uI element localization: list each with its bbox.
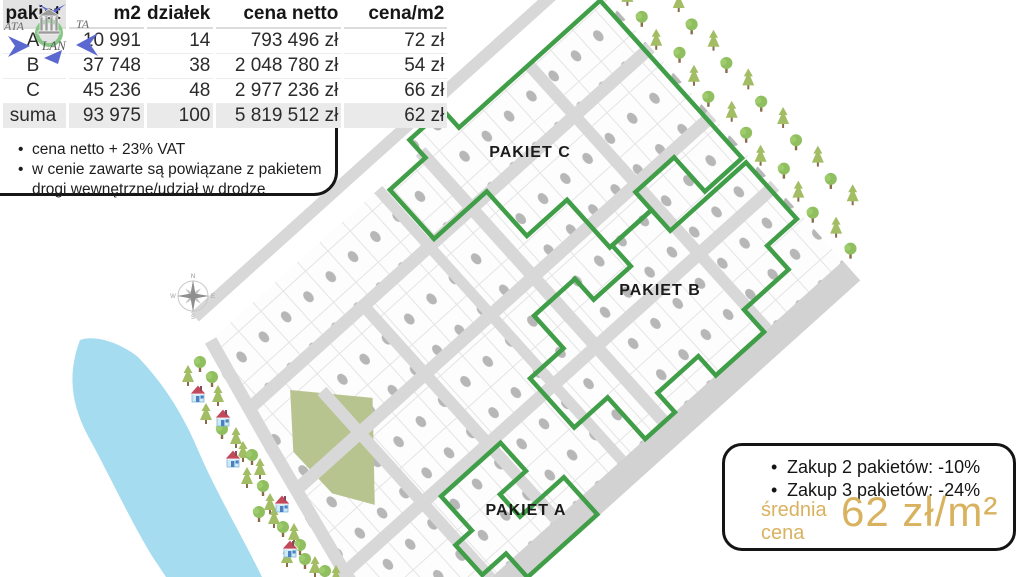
cell: 14	[147, 29, 213, 54]
tree-conifer-icon	[212, 385, 224, 406]
note-item: w cenie zawarte są powiązane z pakietem …	[32, 160, 328, 200]
pricing-notes: cena netto + 23% VAT w cenie zawarte są …	[10, 140, 328, 199]
svg-text:E: E	[211, 294, 215, 300]
cell: 93 975	[69, 104, 144, 128]
tree-conifer-icon	[230, 427, 242, 448]
cell: 2 048 780 zł	[216, 54, 341, 79]
cell: 62 zł	[344, 104, 447, 128]
tree-deciduous-icon	[673, 47, 685, 63]
average-price-label: średnia cena	[761, 499, 827, 545]
tree-conifer-icon	[673, 0, 685, 12]
tree-deciduous-icon	[790, 134, 802, 150]
tree-conifer-icon	[182, 365, 194, 386]
tree-conifer-icon	[688, 65, 700, 86]
cell: 2 977 236 zł	[216, 79, 341, 104]
house-icon	[190, 385, 206, 402]
tree-deciduous-icon	[825, 173, 837, 189]
average-price-value: 62 zł/m²	[841, 488, 998, 536]
tree-deciduous-icon	[636, 11, 648, 27]
tree-conifer-icon	[812, 146, 824, 167]
house-icon	[215, 409, 231, 426]
package-label-c: PAKIET C	[489, 144, 570, 162]
tree-conifer-icon	[755, 145, 767, 166]
tree-deciduous-icon	[778, 163, 790, 179]
tree-deciduous-icon	[253, 506, 265, 522]
logo-text-left: ATA	[3, 19, 25, 33]
tree-deciduous-icon	[206, 371, 218, 387]
cell: suma	[3, 104, 66, 128]
cell: 5 819 512 zł	[216, 104, 341, 128]
tree-deciduous-icon	[755, 96, 767, 112]
tree-conifer-icon	[742, 68, 754, 89]
logo-text-bottom: LAN	[41, 38, 67, 53]
tree-conifer-icon	[792, 181, 804, 202]
column-header-2: działek	[147, 0, 213, 29]
tree-deciduous-icon	[194, 356, 206, 372]
cell: 72 zł	[344, 29, 447, 54]
discount-offer-box: Zakup 2 pakietów: -10% Zakup 3 pakietów:…	[722, 443, 1016, 551]
package-label-a: PAKIET A	[486, 502, 567, 520]
tree-conifer-icon	[708, 30, 720, 51]
pricing-table-row: suma93 9751005 819 512 zł62 zł	[3, 104, 447, 128]
tree-deciduous-icon	[299, 553, 311, 569]
tree-conifer-icon	[650, 29, 662, 50]
logo-text-right: TA	[76, 17, 90, 31]
cell: 793 496 zł	[216, 29, 341, 54]
tree-conifer-icon	[254, 458, 266, 479]
cell: 48	[147, 79, 213, 104]
cell: 100	[147, 104, 213, 128]
tree-deciduous-icon	[277, 521, 289, 537]
tree-deciduous-icon	[807, 207, 819, 223]
house-icon	[225, 450, 241, 467]
tree-deciduous-icon	[257, 480, 269, 496]
tree-conifer-icon	[847, 184, 859, 205]
svg-text:W: W	[170, 294, 176, 300]
tree-conifer-icon	[726, 101, 738, 122]
tree-deciduous-icon	[844, 243, 856, 259]
svg-text:S: S	[191, 315, 195, 321]
tree-conifer-icon	[241, 467, 253, 488]
note-item: cena netto + 23% VAT	[32, 140, 328, 160]
cell: 66 zł	[344, 79, 447, 104]
cell: 54 zł	[344, 54, 447, 79]
column-header-4: cena/m2	[344, 0, 447, 29]
house-icon	[274, 495, 290, 512]
tree-deciduous-icon	[246, 449, 258, 465]
tree-conifer-icon	[777, 107, 789, 128]
cell: 38	[147, 54, 213, 79]
tree-conifer-icon	[200, 403, 212, 424]
tree-deciduous-icon	[685, 18, 697, 34]
tree-deciduous-icon	[740, 127, 752, 143]
offer-bullet: Zakup 2 pakietów: -10%	[787, 456, 1013, 479]
tree-deciduous-icon	[720, 57, 732, 73]
atalan-logo: ATA TA LAN	[0, 0, 114, 90]
tree-deciduous-icon	[702, 91, 714, 107]
column-header-3: cena netto	[216, 0, 341, 29]
tree-conifer-icon	[830, 217, 842, 238]
tree-deciduous-icon	[319, 565, 331, 577]
package-label-b: PAKIET B	[619, 282, 700, 300]
svg-text:N: N	[191, 274, 195, 280]
tree-conifer-icon	[621, 0, 633, 6]
